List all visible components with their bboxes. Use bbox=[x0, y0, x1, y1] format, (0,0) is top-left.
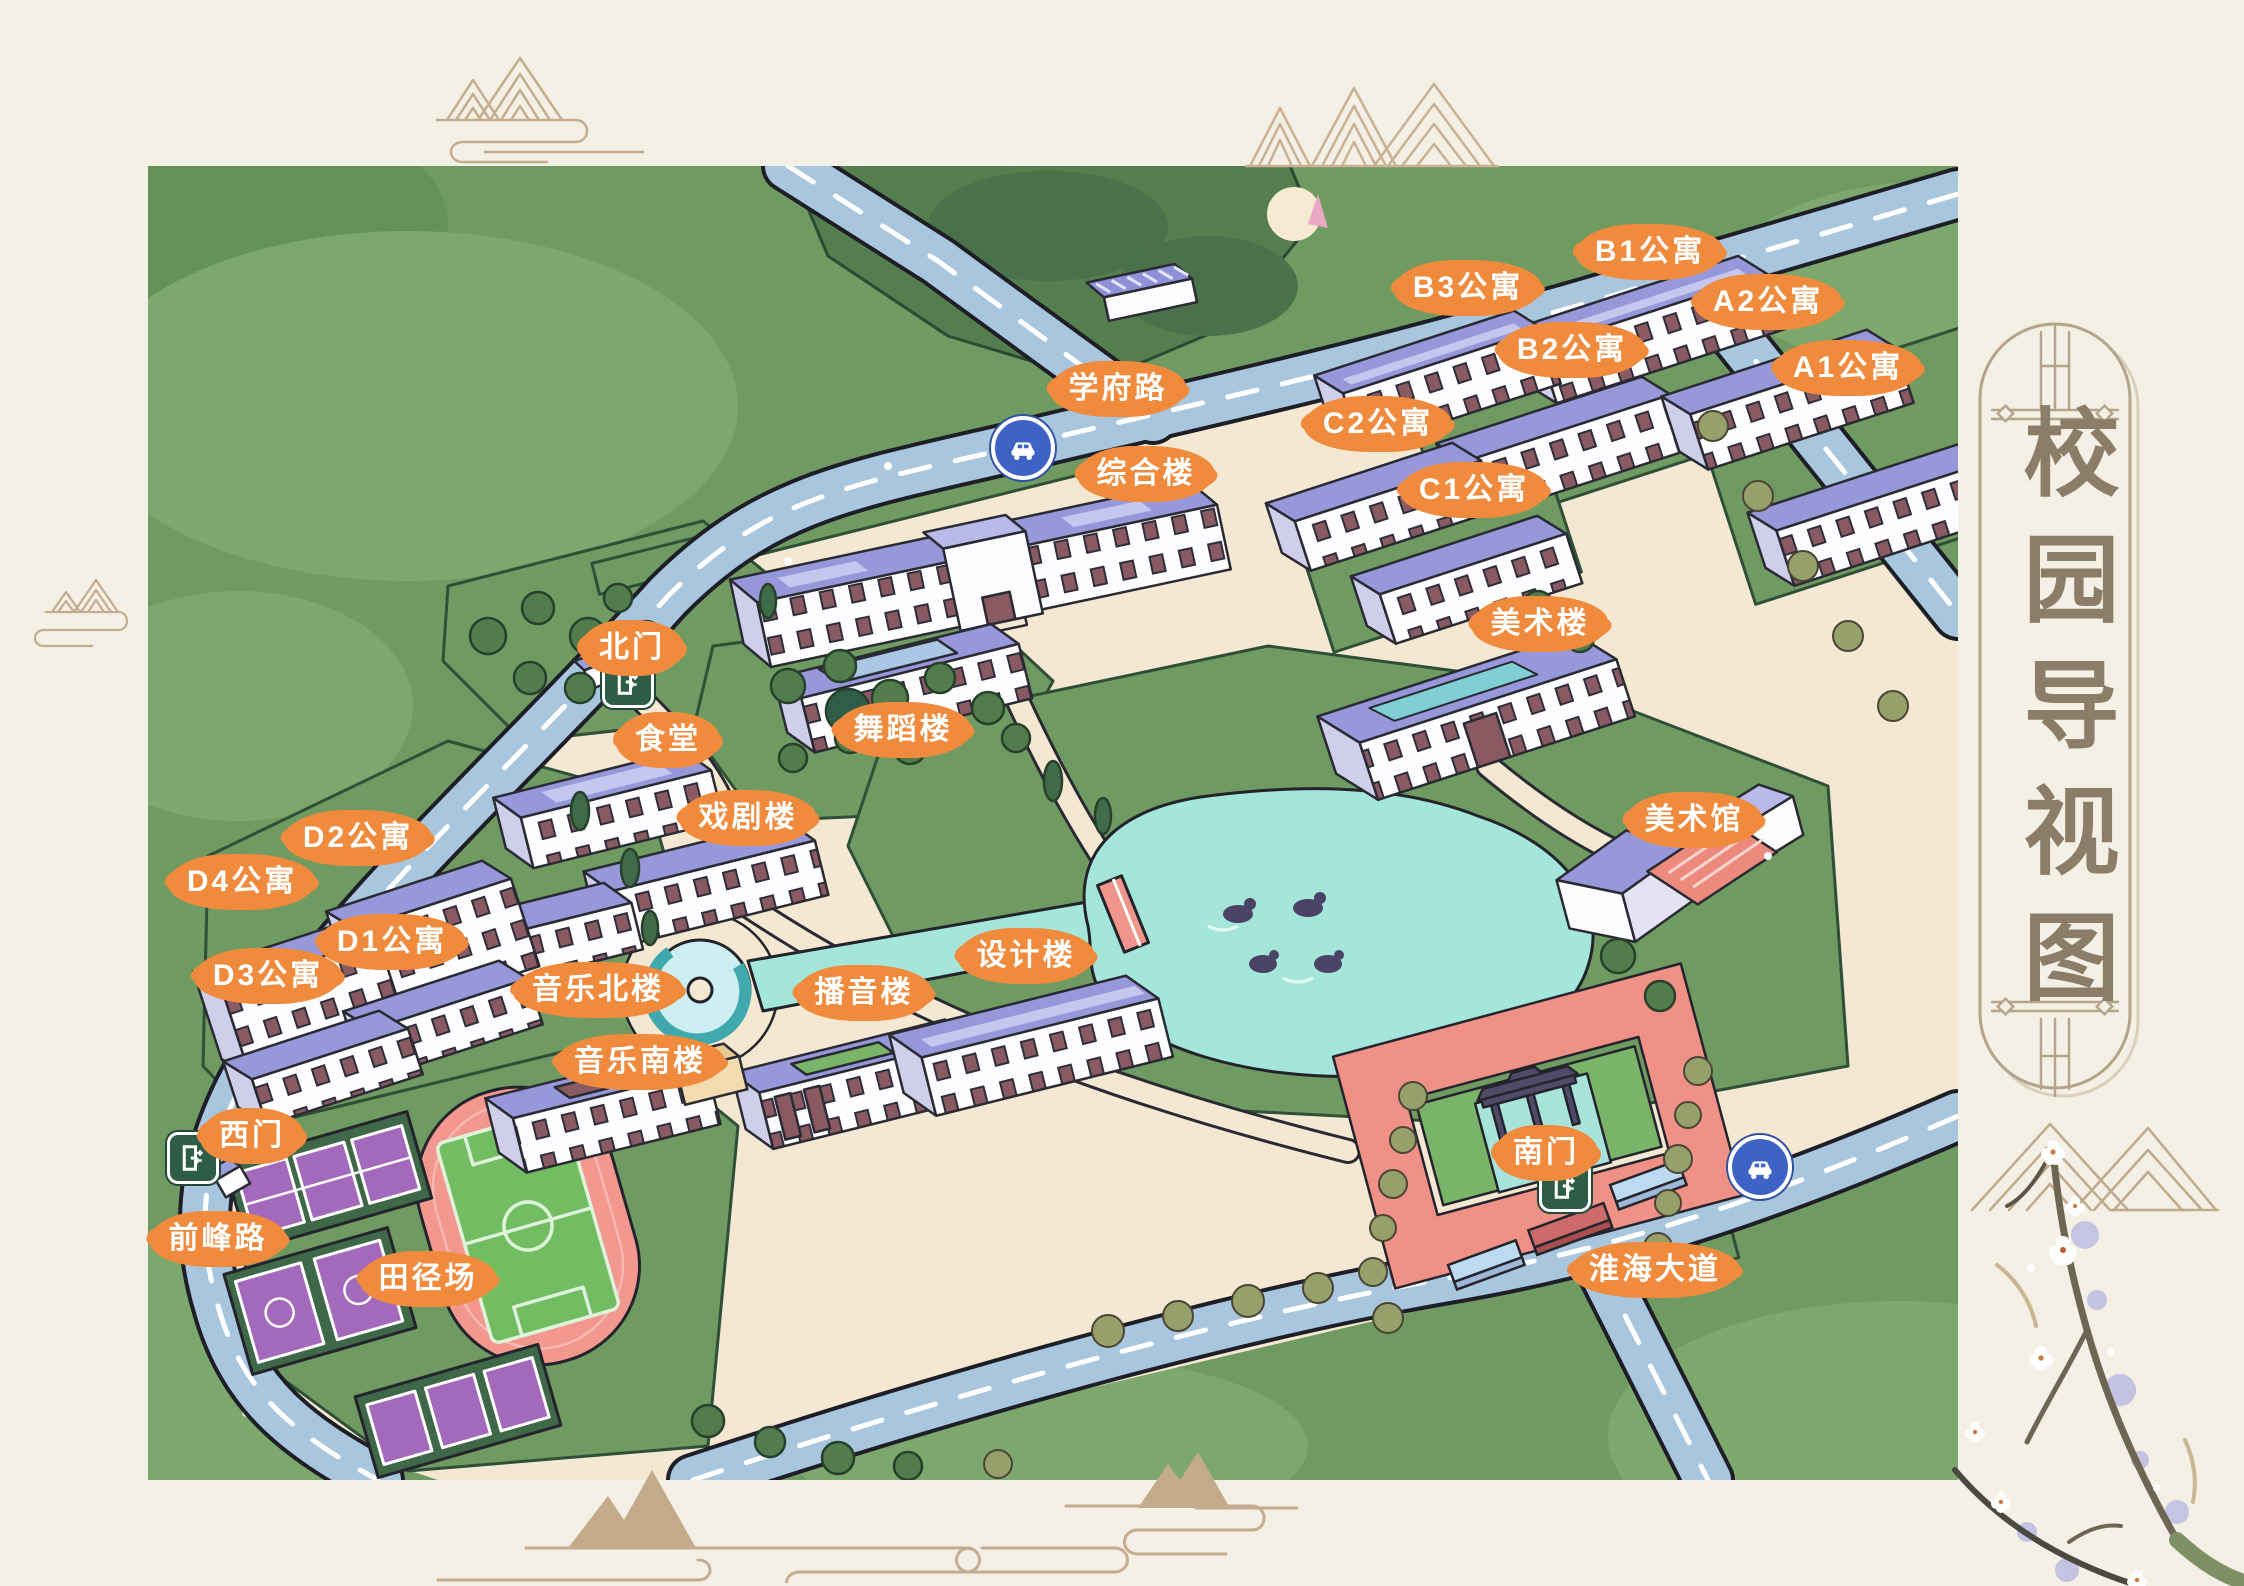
map-label-huaihai-avenue: 淮海大道 bbox=[1574, 1246, 1736, 1294]
mountains-decoration-top bbox=[1242, 82, 1502, 170]
map-label-d3-apartment: D3公寓 bbox=[198, 952, 338, 1000]
map-label-a1-apartment: A1公寓 bbox=[1778, 344, 1918, 392]
gate-door-glyph bbox=[178, 1143, 208, 1173]
campus-guide-poster: { "sidebar": { "title": "校园导视图" }, "map"… bbox=[0, 0, 2244, 1586]
map-overlay: 学府路综合楼B1公寓B3公寓B2公寓A2公寓A1公寓C2公寓C1公寓美术楼北门食… bbox=[148, 166, 1958, 1480]
car-glyph bbox=[1743, 1150, 1777, 1184]
map-label-shitang: 食堂 bbox=[620, 716, 716, 764]
map-label-c2-apartment: C2公寓 bbox=[1308, 400, 1448, 448]
cloud-mountain-decoration-top-left bbox=[415, 40, 695, 175]
map-label-beimen: 北门 bbox=[584, 624, 680, 672]
map-label-xuefu-road: 学府路 bbox=[1054, 365, 1183, 413]
map-label-nanmen: 南门 bbox=[1498, 1129, 1594, 1177]
map-label-qianfeng-road: 前峰路 bbox=[154, 1215, 283, 1263]
map-label-ximen: 西门 bbox=[204, 1112, 300, 1160]
campus-map: 学府路综合楼B1公寓B3公寓B2公寓A2公寓A1公寓C2公寓C1公寓美术楼北门食… bbox=[148, 166, 1958, 1480]
plum-blossom-branch-decoration bbox=[1935, 1140, 2244, 1586]
map-label-d4-apartment: D4公寓 bbox=[172, 858, 312, 906]
map-label-c1-apartment: C1公寓 bbox=[1404, 466, 1544, 514]
map-label-meishuguan: 美术馆 bbox=[1630, 796, 1759, 844]
book-mountain-decoration-left bbox=[18, 568, 143, 660]
map-label-yinyue-north: 音乐北楼 bbox=[517, 966, 679, 1014]
car-sign-huaihai-avenue bbox=[1728, 1135, 1792, 1199]
map-label-d2-apartment: D2公寓 bbox=[288, 814, 428, 862]
side-title: 校园导视图 bbox=[1992, 398, 2132, 1038]
car-sign-xuefu-road bbox=[991, 416, 1055, 480]
map-label-zonghelou: 综合楼 bbox=[1082, 450, 1211, 498]
map-label-d1-apartment: D1公寓 bbox=[322, 918, 462, 966]
map-label-b1-apartment: B1公寓 bbox=[1580, 228, 1720, 276]
map-label-a2-apartment: A2公寓 bbox=[1698, 278, 1838, 326]
map-label-boyinlou: 播音楼 bbox=[800, 969, 929, 1017]
cloud-mountains-decoration-bottom bbox=[408, 1448, 1298, 1583]
map-label-b3-apartment: B3公寓 bbox=[1398, 264, 1538, 312]
map-label-wudaolou: 舞蹈楼 bbox=[839, 706, 968, 754]
map-label-b2-apartment: B2公寓 bbox=[1502, 326, 1642, 374]
map-label-tianjingchang: 田径场 bbox=[364, 1255, 493, 1303]
map-label-yinyue-south: 音乐南楼 bbox=[559, 1038, 721, 1086]
map-label-shejilou: 设计楼 bbox=[962, 932, 1091, 980]
map-label-meishulou: 美术楼 bbox=[1476, 600, 1605, 648]
car-glyph bbox=[1006, 431, 1040, 465]
map-label-xijulou: 戏剧楼 bbox=[684, 794, 813, 842]
